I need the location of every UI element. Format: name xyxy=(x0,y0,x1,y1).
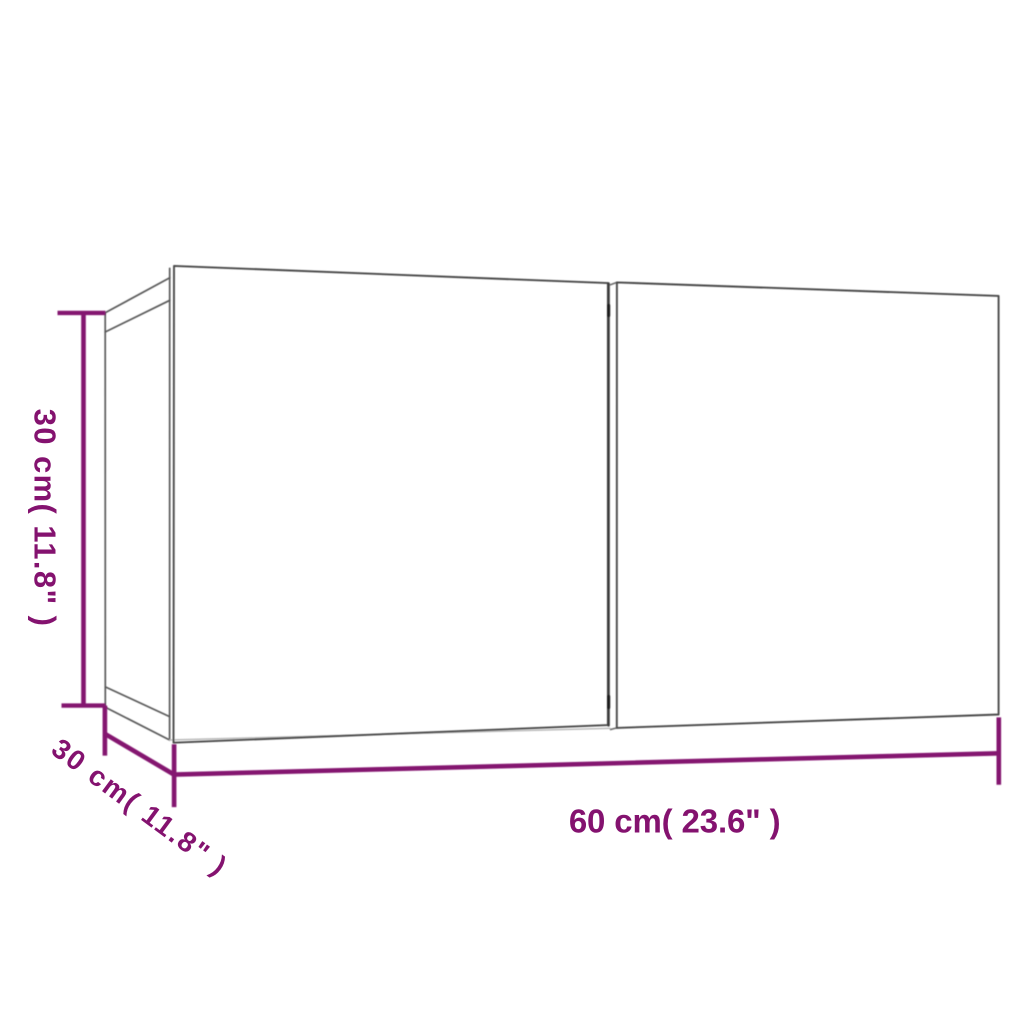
svg-text:60 cm( 23.6" ): 60 cm( 23.6" ) xyxy=(569,802,781,839)
svg-text:30 cm( 11.8" ): 30 cm( 11.8" ) xyxy=(28,409,63,628)
